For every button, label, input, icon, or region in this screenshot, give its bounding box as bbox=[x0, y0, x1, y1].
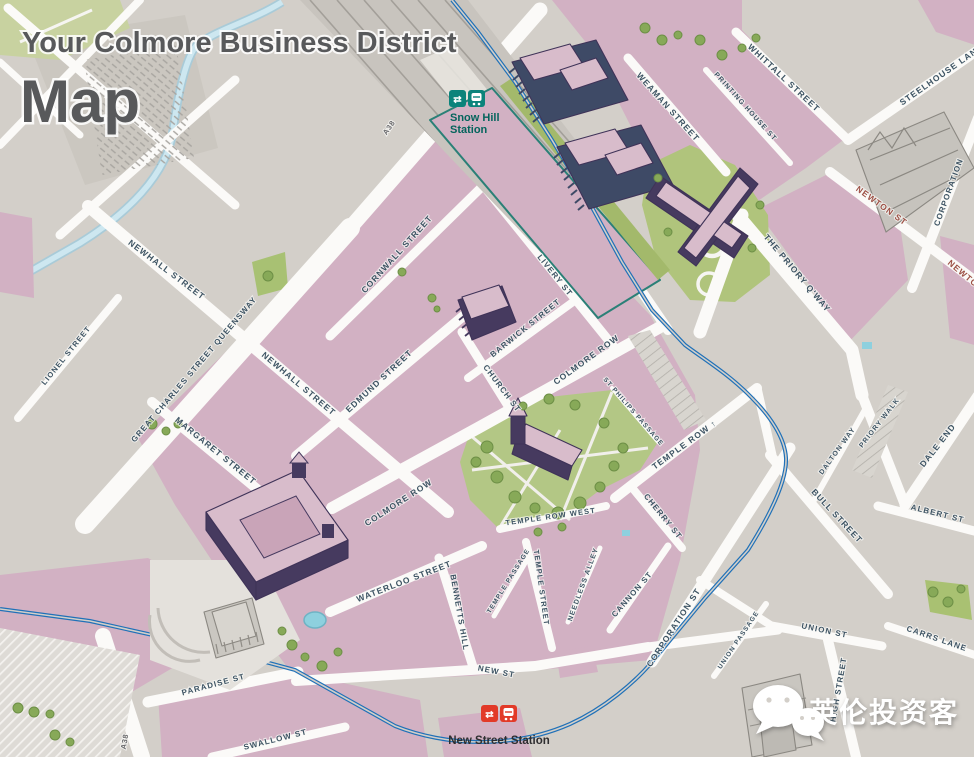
svg-text:Station: Station bbox=[450, 124, 488, 136]
station-name: Snow Hill bbox=[450, 112, 500, 124]
station-name: New Street Station bbox=[448, 735, 550, 747]
pond bbox=[862, 342, 872, 349]
title-line1: Your Colmore Business District bbox=[22, 27, 457, 59]
pond bbox=[622, 530, 630, 536]
svg-text:⇄: ⇄ bbox=[453, 95, 462, 106]
fountain bbox=[304, 612, 326, 628]
map-screenshot: NEWHALL STREETLIONEL STREETGREAT CHARLES… bbox=[0, 0, 974, 757]
title-line2: Map bbox=[20, 68, 140, 135]
watermark-text: 英伦投资客 bbox=[809, 696, 959, 728]
map-canvas: NEWHALL STREETLIONEL STREETGREAT CHARLES… bbox=[0, 0, 974, 757]
svg-text:⇄: ⇄ bbox=[485, 710, 494, 721]
